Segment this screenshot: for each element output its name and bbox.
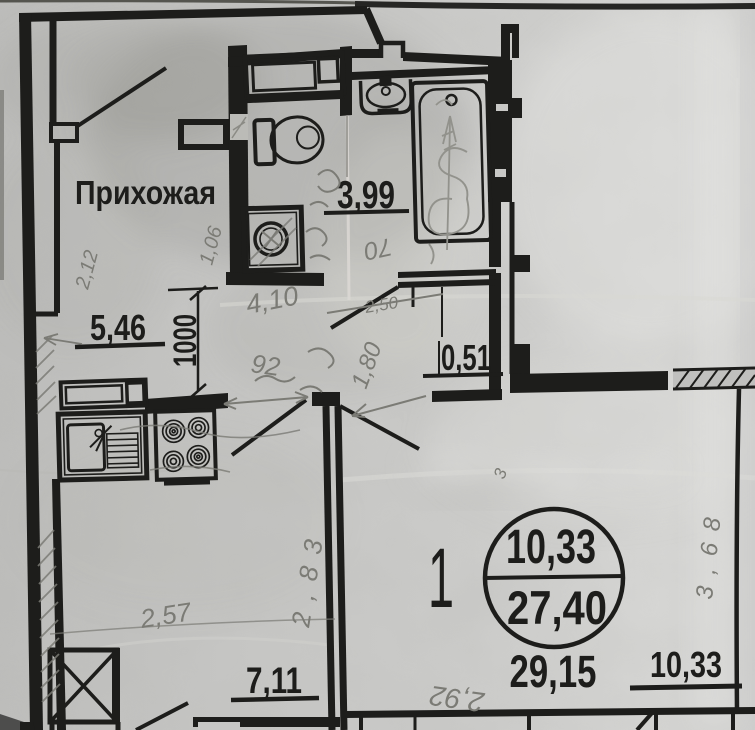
svg-text:70: 70 — [361, 232, 394, 265]
svg-text:1: 1 — [428, 531, 454, 625]
svg-text:7,11: 7,11 — [246, 660, 302, 701]
svg-text:27,40: 27,40 — [507, 581, 607, 634]
svg-text:0,51: 0,51 — [441, 337, 491, 378]
svg-text:29,15: 29,15 — [510, 646, 597, 697]
svg-text:Прихожая: Прихожая — [75, 174, 216, 211]
svg-text:5,46: 5,46 — [90, 307, 146, 348]
svg-text:10,33: 10,33 — [506, 521, 596, 574]
svg-text:10,33: 10,33 — [650, 644, 722, 685]
